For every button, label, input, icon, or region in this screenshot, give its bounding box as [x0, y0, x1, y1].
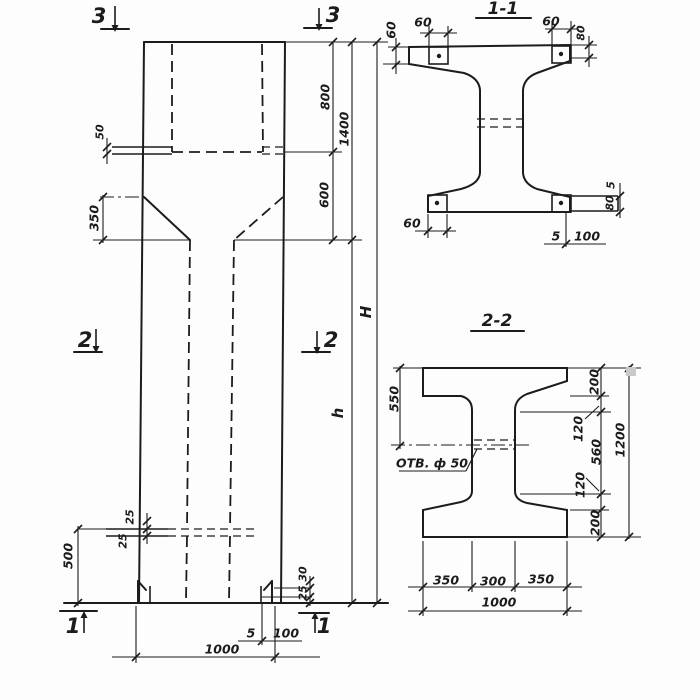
hole-label: ОТВ. ф 50 [396, 456, 468, 471]
dim-bottom-left: 350 [433, 573, 459, 588]
dim-haunch-top: 120 [571, 416, 586, 442]
anchor-dot-icon [435, 201, 439, 205]
dim-bottom-right: 350 [528, 572, 554, 587]
dim-head-total: 1400 [337, 111, 352, 146]
anchor-dot-icon [559, 201, 563, 205]
web-hidden-lines [477, 119, 523, 127]
dim-plate-right-gap: 5 [605, 181, 618, 189]
dim-base-plate-len: 100 [273, 626, 299, 641]
i-section-outline [423, 368, 567, 537]
hidden-lines [168, 44, 285, 601]
marker-label: 2 [78, 328, 93, 352]
scan-artifact [626, 367, 636, 376]
section-1-1-title: 1-1 [488, 0, 519, 19]
dim-bottom-mid: 300 [480, 574, 506, 589]
dim-groove-top: 25 [124, 509, 137, 525]
section-marker-1-left: 1 [60, 611, 97, 638]
dim-groove-bottom: 25 [117, 533, 130, 549]
dim-base-zone: 500 [61, 543, 76, 569]
dim-plate-top-right-w: 60 [542, 14, 560, 29]
section-2-2-title: 2-2 [482, 311, 513, 331]
marker-label: 3 [92, 4, 107, 28]
dim-base-plate-thk: 5 [247, 626, 256, 641]
anchor-dot-icon [437, 54, 441, 58]
dim-top-to-hole: 550 [387, 386, 402, 412]
section-marker-2-right: 2 [302, 328, 338, 354]
section-arrow-up-icon [81, 611, 88, 618]
dim-foot-upper: 30 [297, 566, 310, 582]
dim-foot-lower: 25 [297, 585, 310, 601]
dim-shaft-height: h [329, 408, 347, 419]
dim-width: 1000 [205, 642, 240, 657]
section-marker-2-left: 2 [74, 328, 102, 353]
dim-flange-top: 200 [587, 369, 602, 395]
dim-plate-right-h: 80 [604, 195, 617, 211]
dim-web-clear: 560 [589, 439, 604, 465]
dim-taper: 350 [87, 205, 102, 231]
dim-console-plate: 50 [94, 124, 107, 140]
i-section-outline [409, 45, 570, 212]
section-marker-1-right: 1 [299, 612, 331, 638]
dim-overall-height: H [357, 305, 375, 318]
section-1-1-view: 1-1 [383, 0, 624, 248]
anchor-dot-icon [559, 52, 563, 56]
dim-plate-bottom-len: 100 [574, 229, 600, 244]
technical-drawing: 50 350 800 600 1400 H h 25 25 500 30 25 … [0, 0, 700, 700]
dim-flange-bottom: 200 [588, 510, 603, 536]
section-marker-3-right: 3 [304, 3, 340, 31]
dim-flange-top-right: 80 [575, 25, 588, 41]
hole-lines [391, 440, 529, 449]
dim-top-to-console: 800 [318, 84, 333, 110]
base-feet [138, 581, 272, 603]
marker-label: 1 [66, 614, 81, 638]
dim-haunch-bottom: 120 [573, 472, 588, 498]
drawing-sheet: 50 350 800 600 1400 H h 25 25 500 30 25 … [0, 0, 700, 700]
section-1-1-ticks [392, 25, 624, 248]
dim-console-to-shaft: 600 [317, 182, 332, 208]
marker-label: 3 [326, 3, 341, 27]
dim-plate-top-left-w: 60 [414, 15, 432, 30]
console-lines [106, 147, 172, 536]
marker-label: 1 [317, 614, 332, 638]
dim-plate-top-left-h: 60 [384, 21, 399, 39]
dim-height: 1200 [613, 422, 628, 457]
section-marker-3-left: 3 [92, 4, 129, 32]
section-1-1-dim-lines [383, 21, 620, 247]
elevation-view: 50 350 800 600 1400 H h 25 25 500 30 25 … [60, 3, 388, 663]
dim-bottom-width: 1000 [482, 595, 517, 610]
marker-label: 2 [324, 328, 339, 352]
dim-plate-bottom-thk: 5 [552, 229, 561, 244]
dim-plate-bottom-left-w: 60 [403, 216, 421, 231]
section-2-2-view: 2-2 [387, 311, 642, 616]
